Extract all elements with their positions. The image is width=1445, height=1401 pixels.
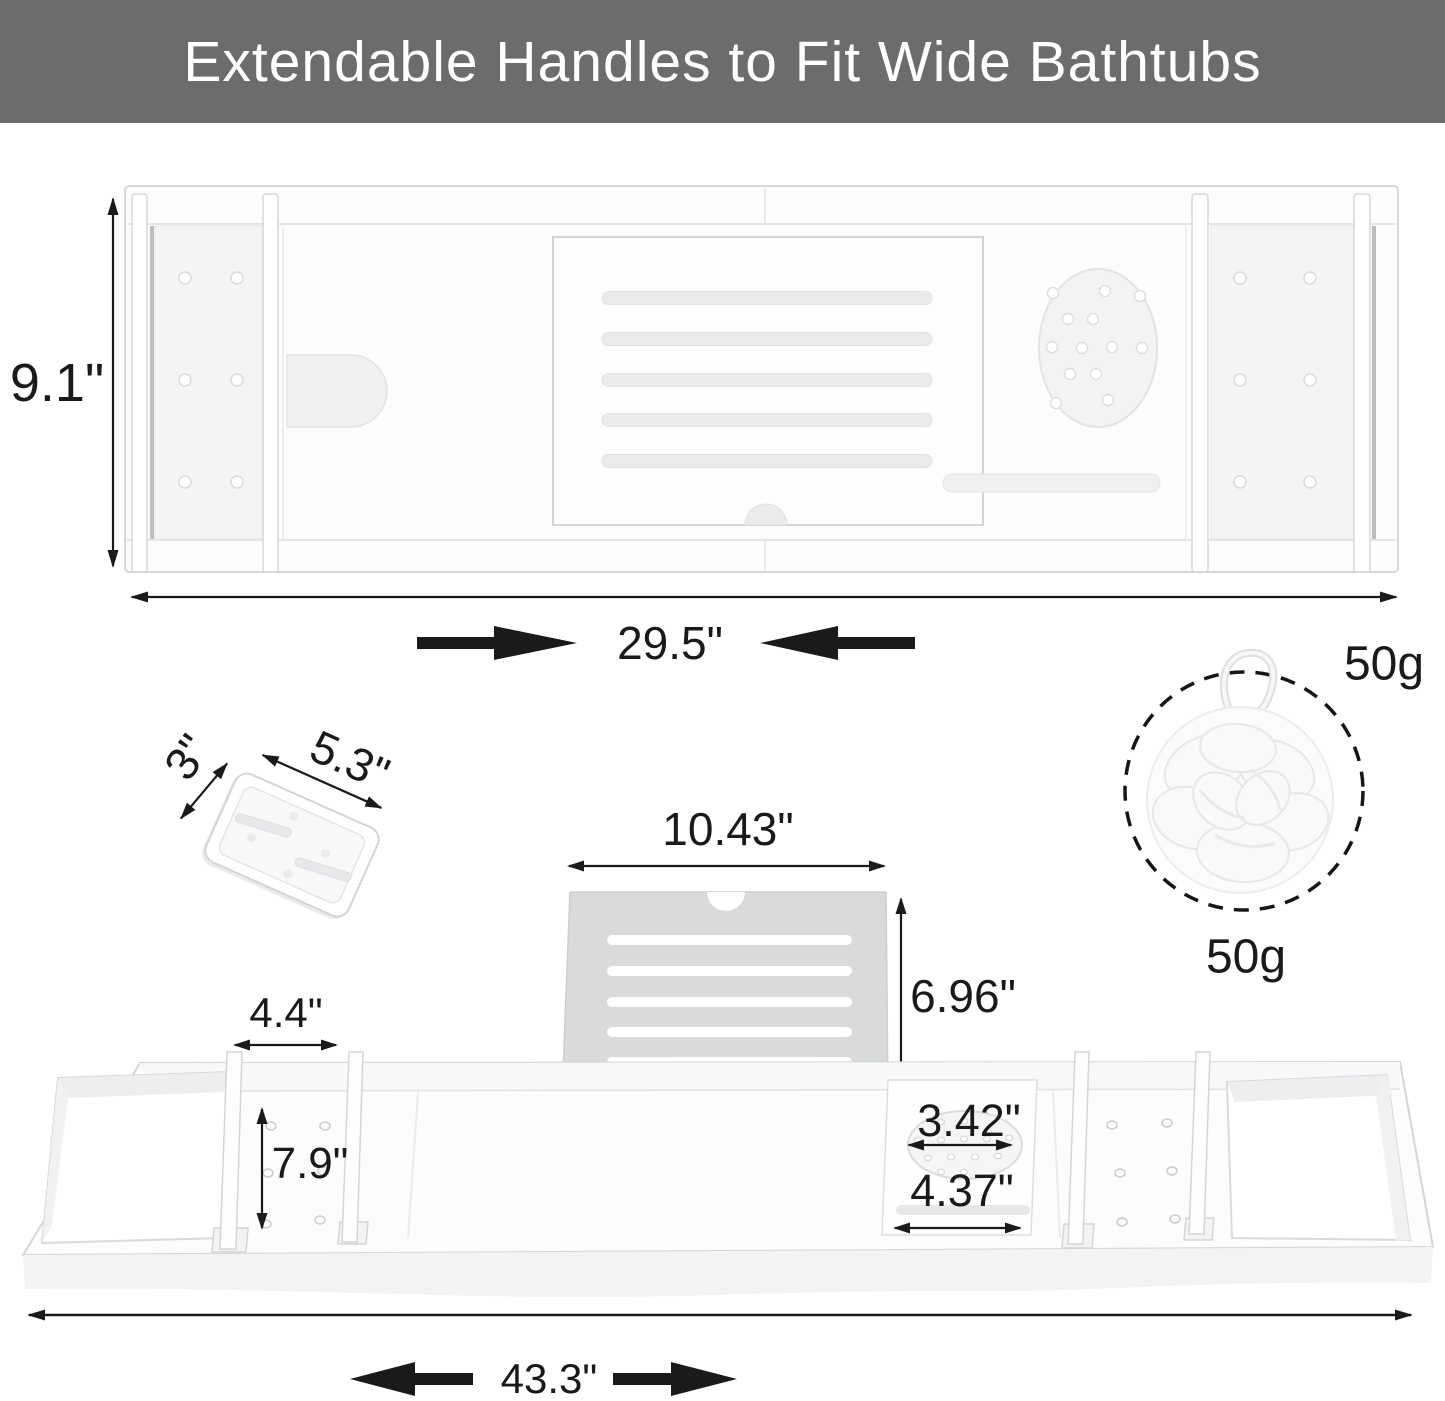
top-view-depth-label: 9.1": [10, 352, 104, 414]
sponge-weight-label-right: 50g: [1344, 637, 1424, 692]
top-view-drawing: [125, 186, 1398, 572]
cup-outer-width-label: 4.37": [910, 1165, 1014, 1217]
right-divider-rail: [1192, 194, 1208, 572]
book-stand-width-label: 10.43": [662, 802, 793, 856]
divider-gap-label: 4.4": [249, 989, 322, 1037]
extend-arrow-left: [350, 1362, 473, 1396]
retract-arrow-left: [417, 626, 577, 660]
left-extension-panel: [155, 226, 264, 539]
bath-sponge-drawing: [1125, 653, 1363, 910]
product-dimension-infographic: Extendable Handles to Fit Wide Bathtubs: [0, 0, 1445, 1401]
right-slide-rail: [1372, 226, 1376, 539]
left-slide-rail: [150, 226, 154, 539]
phone-slot: [287, 355, 387, 427]
front-face: [23, 1247, 1433, 1297]
diagram-canvas: [0, 0, 1445, 1401]
right-extension-panel: [1211, 226, 1354, 539]
bottom-view-drawing: [23, 1052, 1433, 1297]
left-divider-rail: [263, 194, 278, 572]
sponge-weight-label-below: 50g: [1206, 930, 1286, 985]
left-end-rail: [132, 194, 147, 572]
retract-arrow-right: [760, 626, 915, 660]
book-stand-height-label: 6.96": [910, 969, 1016, 1023]
cup-inner-diameter-label: 3.42": [917, 1095, 1021, 1147]
razor-slot: [943, 474, 1160, 492]
extended-length-label: 43.3": [501, 1355, 598, 1401]
top-view-retracted-width-label: 29.5": [617, 616, 723, 670]
extend-arrow-right: [613, 1362, 737, 1396]
tray-width-label: 7.9": [272, 1139, 349, 1189]
right-end-rail: [1354, 194, 1370, 572]
